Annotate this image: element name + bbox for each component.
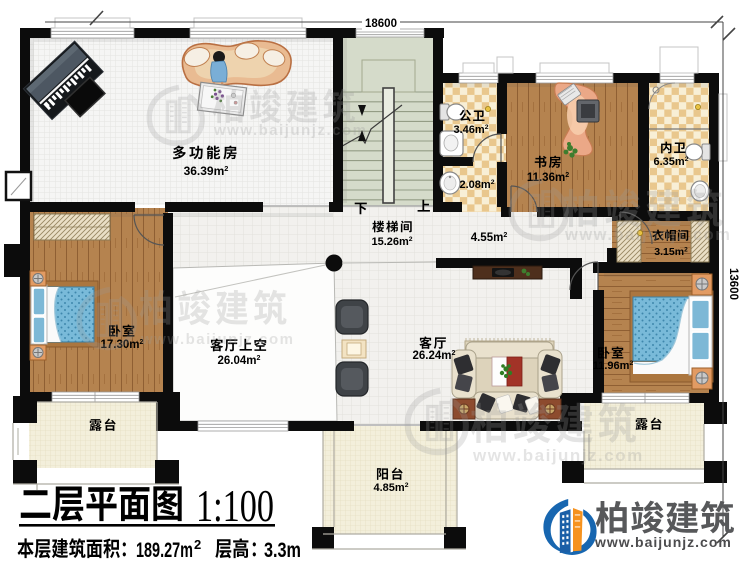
svg-text:www.baijunjz.com: www.baijunjz.com (594, 534, 732, 550)
svg-text:1:100: 1:100 (196, 480, 274, 531)
svg-text:11.96m2: 11.96m2 (593, 360, 634, 372)
svg-text:26.04m2: 26.04m2 (218, 354, 261, 367)
svg-text:3.15m2: 3.15m2 (654, 246, 688, 258)
svg-text:18600: 18600 (365, 18, 397, 30)
svg-text:4.55m2: 4.55m2 (471, 231, 508, 244)
svg-text:36.39m2: 36.39m2 (184, 164, 229, 178)
svg-text:www.baijunjz.com: www.baijunjz.com (564, 226, 731, 244)
svg-text:www.baijunjz.com: www.baijunjz.com (472, 446, 644, 465)
svg-text:189.27m: 189.27m (136, 539, 193, 562)
svg-text:6.35m2: 6.35m2 (654, 156, 689, 168)
svg-text:2.08m2: 2.08m2 (460, 179, 495, 191)
svg-text:3.46m2: 3.46m2 (454, 124, 489, 136)
svg-text:www.baijunjz.com: www.baijunjz.com (213, 122, 367, 139)
svg-text:3.3m: 3.3m (264, 539, 301, 562)
svg-text:13600: 13600 (727, 268, 739, 300)
svg-text:26.24m2: 26.24m2 (413, 349, 456, 362)
svg-text:15.26m2: 15.26m2 (371, 236, 412, 248)
svg-text:4.85m2: 4.85m2 (374, 482, 409, 494)
svg-text:www.baijunjz.com: www.baijunjz.com (140, 331, 294, 348)
svg-text:2: 2 (194, 537, 201, 552)
